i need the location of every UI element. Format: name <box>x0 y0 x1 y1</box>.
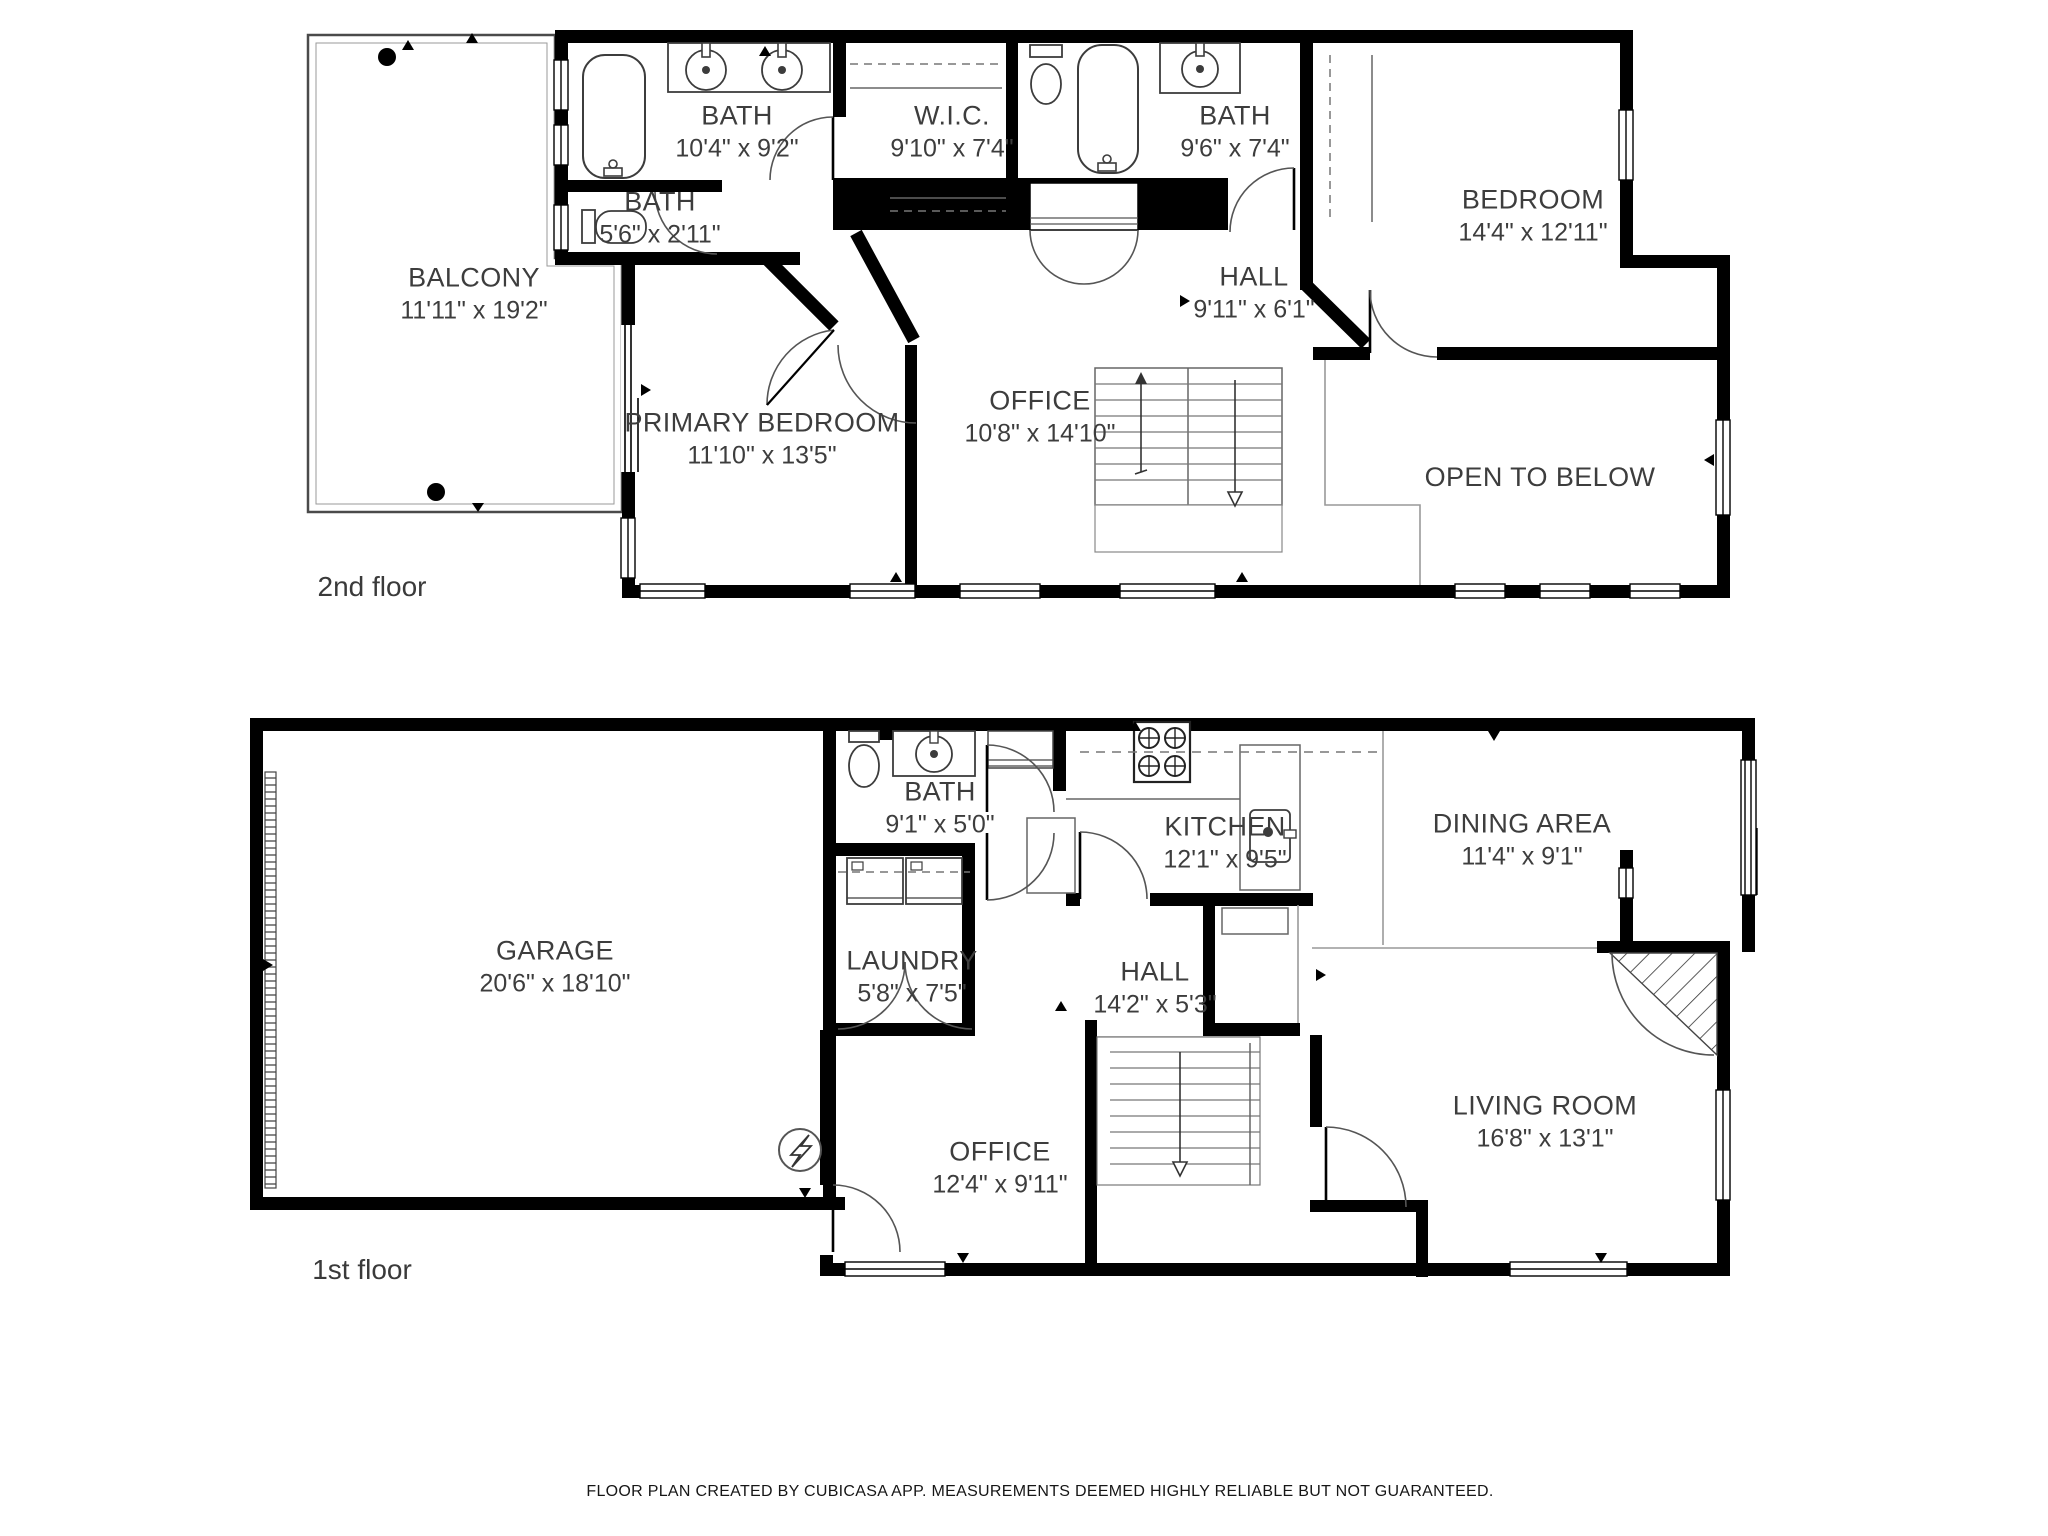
room-name: LAUNDRY <box>846 945 977 977</box>
room-label-bath-hall: BATH 9'6" x 7'4" <box>1180 100 1289 163</box>
room-label-garage: GARAGE 20'6" x 18'10" <box>479 935 630 998</box>
sink-vanity-icon <box>1160 43 1240 93</box>
double-vanity-icon <box>668 43 830 92</box>
room-label-office-2nd: OFFICE 10'8" x 14'10" <box>964 385 1115 448</box>
open-to-below-boundary <box>1325 360 1420 585</box>
toilet-icon <box>849 731 879 787</box>
room-label-bath-1st: BATH 9'1" x 5'0" <box>885 776 994 839</box>
hall-closet <box>988 731 1053 768</box>
floorplan-page: BALCONY 11'11" x 19'2" BATH 10'4" x 9'2"… <box>0 0 2048 1536</box>
room-name: LIVING ROOM <box>1453 1090 1637 1122</box>
room-dims: 10'8" x 14'10" <box>964 419 1115 449</box>
room-name: BATH <box>675 100 798 132</box>
room-name: BATH <box>1180 100 1289 132</box>
room-name: BATH <box>599 186 720 218</box>
room-name: BATH <box>885 776 994 808</box>
room-label-open-to-below: OPEN TO BELOW <box>1425 462 1656 494</box>
room-name: OFFICE <box>932 1136 1067 1168</box>
floor-label-2nd: 2nd floor <box>318 571 427 603</box>
room-name: HALL <box>1193 261 1314 293</box>
room-name: GARAGE <box>479 935 630 967</box>
room-dims: 5'6" x 2'11" <box>599 220 720 250</box>
balcony-column-icon <box>378 48 396 66</box>
room-name: BALCONY <box>400 262 547 294</box>
room-dims: 16'8" x 13'1" <box>1453 1124 1637 1154</box>
room-name: PRIMARY BEDROOM <box>624 407 899 439</box>
staircase <box>1095 360 1420 585</box>
bathtub-icon <box>1078 45 1138 173</box>
room-dims: 11'4" x 9'1" <box>1433 842 1611 872</box>
footer-disclaimer: FLOOR PLAN CREATED BY CUBICASA APP. MEAS… <box>586 1483 1493 1501</box>
room-dims: 10'4" x 9'2" <box>675 134 798 164</box>
room-label-balcony: BALCONY 11'11" x 19'2" <box>400 262 547 325</box>
room-dims: 9'6" x 7'4" <box>1180 134 1289 164</box>
electric-panel-icon <box>779 1129 821 1171</box>
room-label-hall-2nd: HALL 9'11" x 6'1" <box>1193 261 1314 324</box>
room-label-dining-area: DINING AREA 11'4" x 9'1" <box>1433 808 1611 871</box>
room-dims: 14'4" x 12'11" <box>1458 218 1607 248</box>
room-dims: 5'8" x 7'5" <box>846 979 977 1009</box>
floorplan-drawing <box>0 0 2048 1536</box>
room-label-hall-1st: HALL 14'2" x 5'3" <box>1093 956 1216 1019</box>
floor-label-1st: 1st floor <box>312 1254 412 1286</box>
room-dims: 12'4" x 9'11" <box>932 1170 1067 1200</box>
room-label-bath-small: BATH 5'6" x 2'11" <box>599 186 720 249</box>
room-label-bedroom: BEDROOM 14'4" x 12'11" <box>1458 184 1607 247</box>
balcony-column-icon <box>427 483 445 501</box>
room-label-living-room: LIVING ROOM 16'8" x 13'1" <box>1453 1090 1637 1153</box>
bathtub-icon <box>583 55 645 178</box>
room-dims: 20'6" x 18'10" <box>479 969 630 999</box>
garage-door-icon <box>265 772 276 1188</box>
room-dims: 11'10" x 13'5" <box>624 441 899 471</box>
washer-dryer-icons <box>838 858 970 904</box>
room-label-laundry: LAUNDRY 5'8" x 7'5" <box>846 945 977 1008</box>
room-label-bath-primary: BATH 10'4" x 9'2" <box>675 100 798 163</box>
room-dims: 12'1" x 9'5" <box>1163 845 1286 875</box>
room-name: BEDROOM <box>1458 184 1607 216</box>
room-label-wic: W.I.C. 9'10" x 7'4" <box>890 100 1013 163</box>
room-dims: 9'11" x 6'1" <box>1193 295 1314 325</box>
room-label-office-1st: OFFICE 12'4" x 9'11" <box>932 1136 1067 1199</box>
room-name: OFFICE <box>964 385 1115 417</box>
room-name: OPEN TO BELOW <box>1425 462 1656 494</box>
room-name: KITCHEN <box>1163 811 1286 843</box>
room-name: DINING AREA <box>1433 808 1611 840</box>
sink-vanity-icon <box>893 731 975 776</box>
room-label-kitchen: KITCHEN 12'1" x 9'5" <box>1163 811 1286 874</box>
room-dims: 11'11" x 19'2" <box>400 296 547 326</box>
room-dims: 9'10" x 7'4" <box>890 134 1013 164</box>
room-dims: 14'2" x 5'3" <box>1093 990 1216 1020</box>
room-dims: 9'1" x 5'0" <box>885 810 994 840</box>
toilet-icon <box>1030 45 1062 104</box>
room-name: HALL <box>1093 956 1216 988</box>
staircase <box>1097 1037 1260 1185</box>
room-name: W.I.C. <box>890 100 1013 132</box>
room-label-primary-bedroom: PRIMARY BEDROOM 11'10" x 13'5" <box>624 407 899 470</box>
